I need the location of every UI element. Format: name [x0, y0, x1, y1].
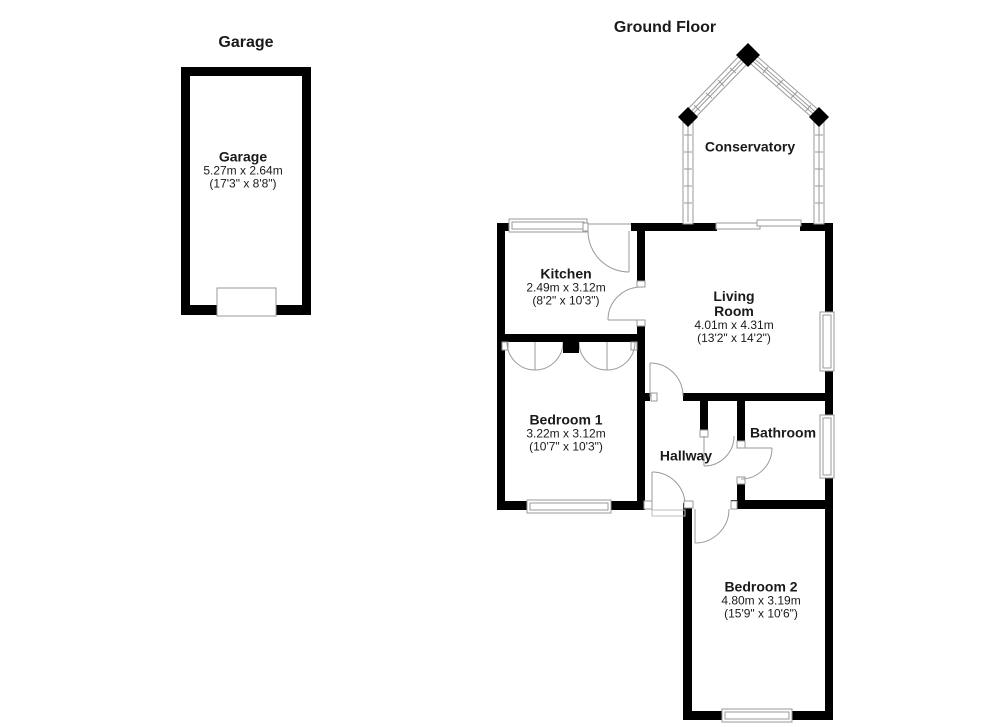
bedroom2-window	[722, 709, 792, 722]
bathroom-door	[737, 441, 772, 484]
kitchen-living-door	[608, 281, 645, 326]
living-room-label: Living Room 4.01m x 4.31m (13'2" x 14'2"…	[694, 289, 773, 345]
kitchen-imperial: (8'2" x 10'3")	[526, 295, 605, 308]
conservatory-patio-doors	[716, 220, 801, 229]
garage-room-name: Garage	[203, 150, 282, 165]
roof-corner-post-right	[809, 107, 829, 127]
conservatory-name: Conservatory	[705, 140, 795, 155]
bedroom1-wardrobes	[502, 342, 637, 370]
living-room-door	[650, 363, 683, 401]
roof-apex-post	[736, 43, 760, 67]
bedroom2-name: Bedroom 2	[721, 580, 800, 595]
conservatory-glazed-wall-left	[683, 114, 693, 224]
conservatory-roof-left	[684, 51, 752, 121]
garage-door	[217, 288, 276, 316]
kitchen-name: Kitchen	[526, 267, 605, 282]
kitchen-window	[509, 219, 587, 232]
floor-plan-page: Garage Ground Floor Garage 5.27m x 2.64m…	[0, 0, 1000, 727]
front-door	[644, 472, 685, 516]
bathroom-name: Bathroom	[750, 426, 816, 441]
living-room-window	[820, 312, 834, 371]
conservatory-roof-right	[744, 51, 822, 120]
hallway-name: Hallway	[660, 449, 712, 464]
garage-room-label: Garage 5.27m x 2.64m (17'3" x 8'8")	[203, 150, 282, 191]
bedroom2-imperial: (15'9" x 10'6")	[721, 608, 800, 621]
bedroom2-label: Bedroom 2 4.80m x 3.19m (15'9" x 10'6")	[721, 580, 800, 621]
garage-room-imperial: (17'3" x 8'8")	[203, 178, 282, 191]
bedroom1-imperial: (10'7" x 10'3")	[526, 441, 605, 454]
conservatory-structure	[678, 43, 829, 229]
garage-structure	[181, 67, 311, 316]
living-room-name-line1: Living	[694, 289, 773, 304]
conservatory-glazed-wall-right	[814, 114, 824, 224]
bathroom-window	[820, 415, 834, 478]
kitchen-label: Kitchen 2.49m x 3.12m (8'2" x 10'3")	[526, 267, 605, 308]
bedroom1-label: Bedroom 1 3.22m x 3.12m (10'7" x 10'3")	[526, 413, 605, 454]
living-room-imperial: (13'2" x 14'2")	[694, 332, 773, 345]
bathroom-label: Bathroom	[750, 426, 816, 441]
floor-plan-drawing	[0, 0, 1000, 727]
ground-floor-title: Ground Floor	[614, 19, 716, 37]
hallway-label: Hallway	[660, 449, 712, 464]
bedroom1-name: Bedroom 1	[526, 413, 605, 428]
bedroom1-window	[527, 500, 611, 513]
living-room-name-line2: Room	[694, 304, 773, 319]
conservatory-label: Conservatory	[705, 140, 795, 155]
garage-title: Garage	[218, 34, 273, 52]
roof-corner-post-left	[678, 107, 698, 127]
